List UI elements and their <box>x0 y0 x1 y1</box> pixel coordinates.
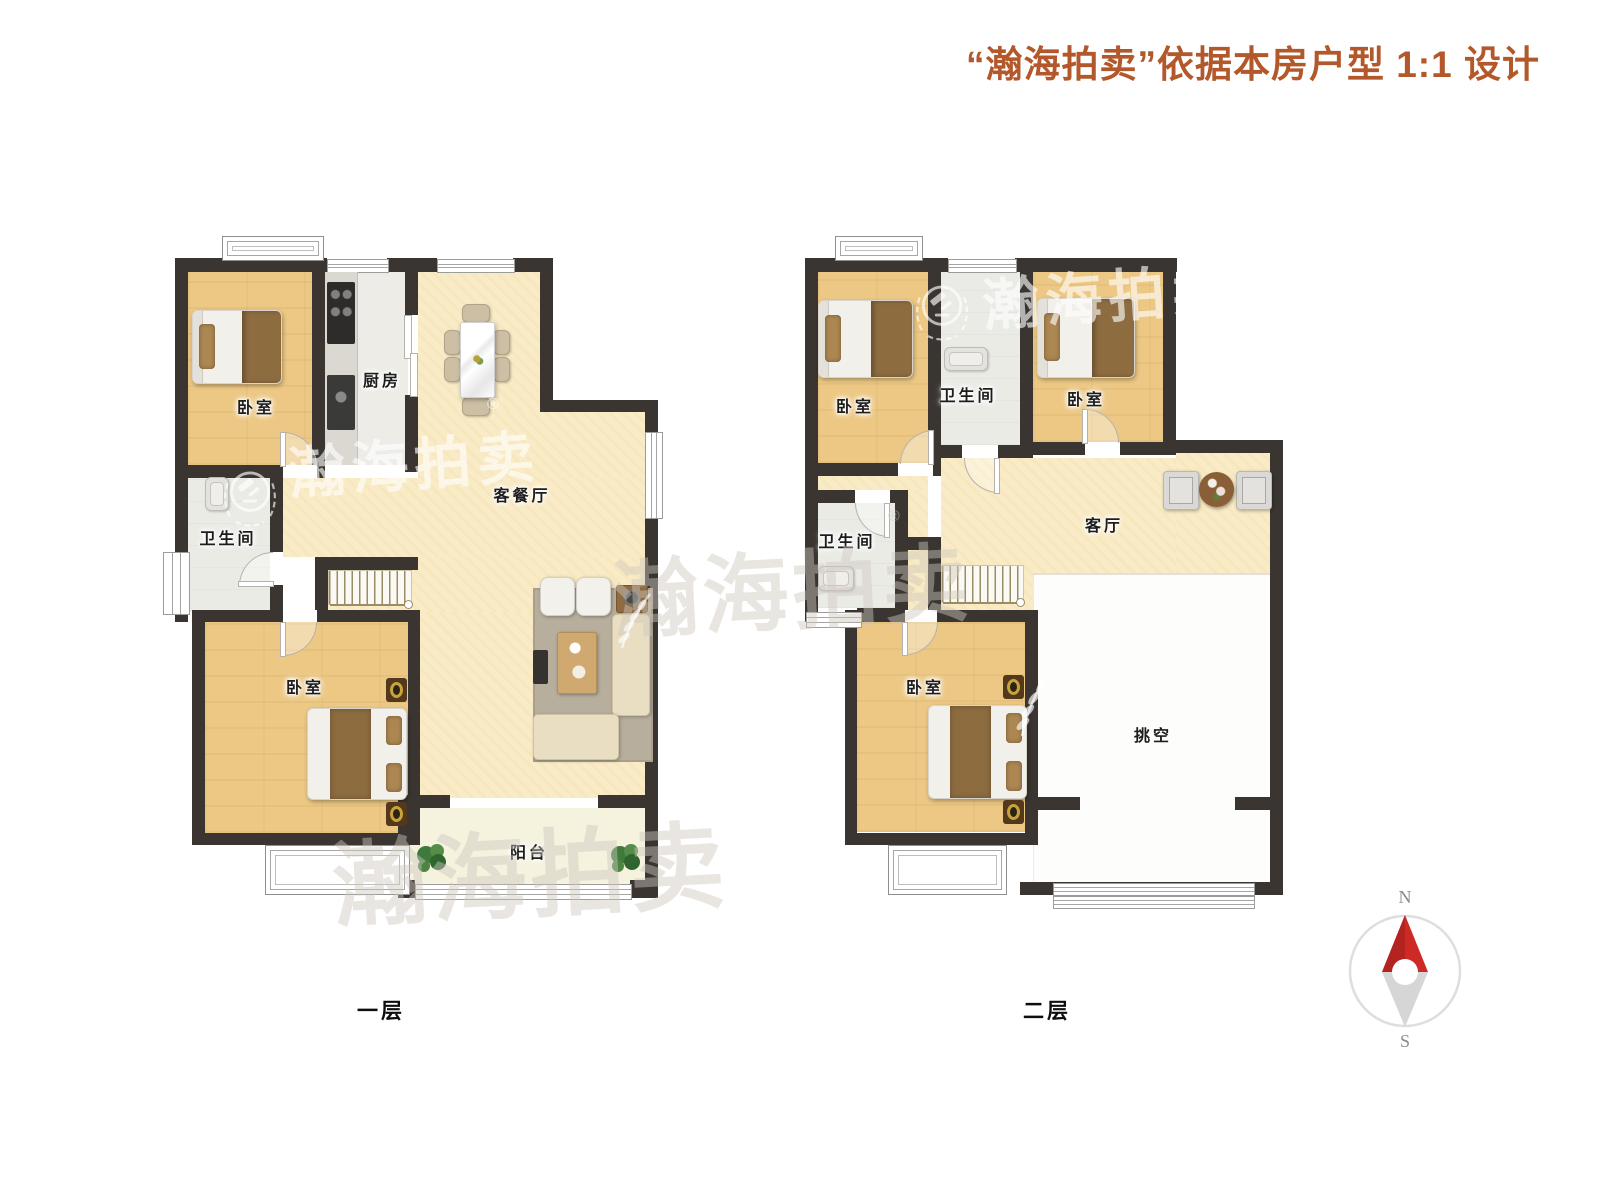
dining-chair <box>493 357 510 382</box>
wall <box>845 610 857 845</box>
stairs-rail-end <box>1016 598 1025 607</box>
wall <box>192 610 205 845</box>
room-label-bedroom: 卧室 <box>836 393 874 417</box>
wall <box>405 258 418 315</box>
room-label-kitchen: 厨房 <box>363 367 401 391</box>
coffee-table <box>557 632 597 694</box>
wall <box>175 258 188 552</box>
watermark-brand: 瀚海拍卖 <box>609 513 975 657</box>
bed-pillow <box>386 763 402 792</box>
door-leaf <box>280 622 286 657</box>
watermark-registered: ® <box>487 396 499 414</box>
window <box>835 236 923 261</box>
window <box>1053 896 1255 909</box>
bed-blanket <box>330 709 371 799</box>
wall <box>933 463 941 476</box>
room-living-f2 <box>818 476 928 490</box>
room-label-bedroom: 卧室 <box>906 674 944 698</box>
floor1-caption: 一层 <box>357 995 405 1025</box>
nightstand <box>1003 800 1024 824</box>
door-leaf <box>238 581 274 587</box>
stairs-rail-end <box>404 600 413 609</box>
room-label-void: 挑空 <box>1134 722 1172 746</box>
compass-hub <box>1392 959 1418 985</box>
wall <box>270 585 283 612</box>
watermark-logo-icon <box>906 274 978 346</box>
stairs-rail <box>330 604 408 606</box>
kitchen-sink <box>327 375 355 430</box>
armchair <box>1236 471 1272 510</box>
dining-chair <box>444 330 461 355</box>
room-label-living: 客厅 <box>1085 512 1123 536</box>
sofa <box>533 714 619 760</box>
watermark-brand: 瀚海拍卖 <box>285 411 542 510</box>
doorway <box>1085 442 1120 455</box>
round-table <box>1199 472 1234 507</box>
wall <box>1163 440 1283 453</box>
window <box>163 552 190 615</box>
stairs-f1 <box>328 570 412 605</box>
bed-pillow <box>825 315 841 362</box>
bed-blanket <box>950 706 991 798</box>
armchair <box>576 577 611 616</box>
bed <box>818 300 913 378</box>
watermark-brand: 瀚海拍卖 <box>329 790 732 948</box>
watermark-logo-icon <box>214 460 286 532</box>
dining-chair <box>493 330 510 355</box>
page-title: “瀚海拍卖”依据本房户型 1:1 设计 <box>966 34 1540 88</box>
void-edge <box>1033 573 1270 575</box>
wall <box>1033 797 1080 810</box>
wall <box>941 445 962 458</box>
dining-chair <box>462 397 490 416</box>
wall <box>1020 442 1085 455</box>
window <box>222 236 324 261</box>
wall <box>317 610 420 622</box>
doorway <box>962 445 998 458</box>
wall <box>845 833 1038 845</box>
wall <box>315 557 328 612</box>
door-leaf <box>994 458 1000 494</box>
wall <box>540 258 553 412</box>
door-leaf <box>928 430 934 465</box>
bed-blanket <box>242 311 281 383</box>
nightstand <box>386 678 407 702</box>
window <box>327 259 389 273</box>
bed <box>307 708 407 800</box>
wall <box>1270 440 1283 895</box>
dining-chair <box>462 304 490 323</box>
window <box>437 259 515 273</box>
compass: N S <box>1345 875 1465 1050</box>
window <box>1053 883 1255 896</box>
door-leaf <box>1082 409 1088 444</box>
room-label-bathroom: 卫生间 <box>939 382 996 406</box>
bed-pillow <box>386 716 402 745</box>
compass-south-label: S <box>1400 1031 1410 1050</box>
wall <box>1235 797 1270 810</box>
doorway <box>283 610 317 622</box>
wall <box>315 557 418 570</box>
dining-chair <box>444 357 461 382</box>
floor2-caption: 二层 <box>1023 995 1071 1025</box>
window <box>645 432 663 519</box>
tv-console <box>533 650 548 684</box>
sliding-door-leaf <box>410 353 418 397</box>
window <box>888 845 1007 895</box>
room-label-bedroom: 卧室 <box>237 394 275 418</box>
room-label-bedroom: 卧室 <box>286 674 324 698</box>
wall <box>192 610 283 622</box>
laurel-branch-icon <box>1008 666 1054 740</box>
laurel-branch-icon <box>612 588 658 652</box>
bed-pillow <box>199 324 215 369</box>
armchair <box>1163 471 1199 510</box>
bed-pillow <box>1006 761 1022 790</box>
wall <box>540 400 658 412</box>
watermark-registered: ® <box>888 508 900 526</box>
watermark-brand: 瀚海拍卖 <box>979 243 1236 342</box>
washbasin <box>944 347 988 371</box>
dining-table <box>460 322 495 398</box>
doorway <box>855 490 890 503</box>
wall <box>805 490 855 503</box>
room-label-bedroom: 卧室 <box>1067 386 1105 410</box>
wall <box>805 463 898 476</box>
compass-north-label: N <box>1399 887 1412 907</box>
armchair <box>540 577 575 616</box>
stove <box>327 282 355 344</box>
bed <box>192 310 282 384</box>
floorplan-canvas: “瀚海拍卖”依据本房户型 1:1 设计 <box>0 0 1600 1200</box>
